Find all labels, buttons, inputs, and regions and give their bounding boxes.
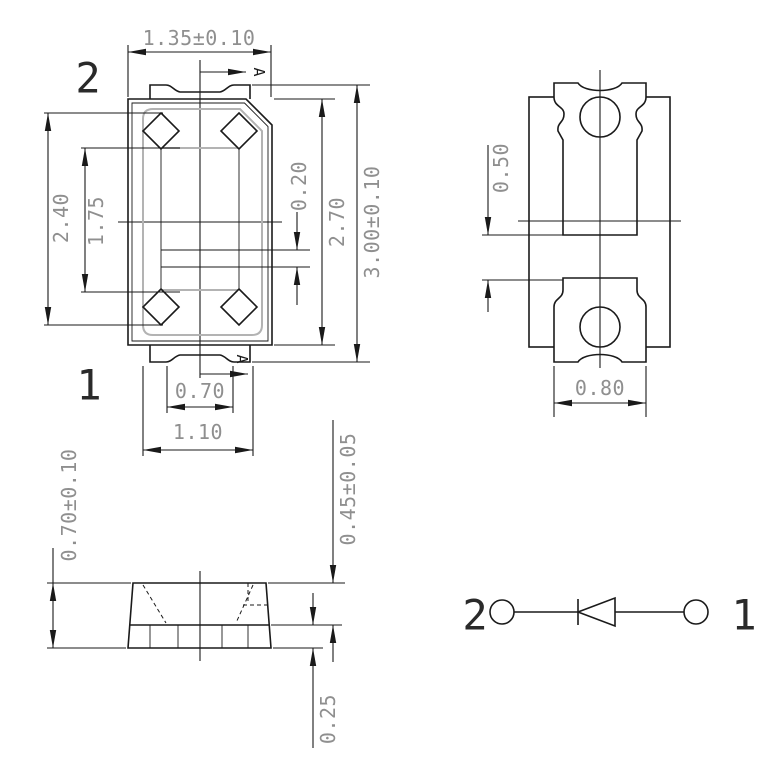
dim-center-gap: 0.20 (287, 161, 311, 211)
corner-diamond-top-right (221, 113, 257, 149)
hidden-edge-right (236, 585, 253, 623)
dim-body-height: 0.45±0.05 (336, 433, 360, 546)
section-label-bottom: A (233, 354, 251, 363)
schematic-pin-2-label: 2 (462, 591, 487, 640)
pin-2-label: 2 (75, 54, 100, 103)
top-view: A A 2 1 1.35±0.10 2.40 1.75 0.20 2.70 (44, 26, 384, 456)
dim-top-width: 1.35±0.10 (143, 26, 256, 50)
led-package-drawing: A A 2 1 1.35±0.10 2.40 1.75 0.20 2.70 (0, 0, 761, 772)
dim-pad-width: 0.80 (575, 376, 625, 400)
schematic-pin-1-label: 1 (731, 591, 756, 640)
dim-lead-height: 0.25 (316, 694, 340, 744)
terminal-2-circle (490, 600, 514, 624)
side-view: 0.70±0.10 0.45±0.05 0.25 (47, 420, 360, 748)
diode-triangle (578, 598, 615, 626)
corner-diamond-bottom-left (143, 289, 179, 325)
circuit-schematic: 2 1 (462, 591, 756, 640)
dim-left-outer: 2.40 (49, 193, 73, 243)
dim-pad-gap: 0.50 (489, 143, 513, 193)
dim-bottom-tab: 1.10 (173, 420, 223, 444)
dim-bottom-bump: 0.70 (175, 379, 225, 403)
hidden-edge-left (143, 585, 166, 623)
drawing-canvas: A A 2 1 1.35±0.10 2.40 1.75 0.20 2.70 (0, 0, 761, 772)
section-label-top: A (250, 67, 268, 76)
dim-right-overall: 3.00±0.10 (360, 166, 384, 279)
corner-diamond-top-left (143, 113, 179, 149)
pad-layout-view: 0.50 0.80 (482, 70, 681, 417)
dim-right-body: 2.70 (325, 197, 349, 247)
dim-total-height: 0.70±0.10 (57, 449, 81, 562)
dim-left-inner: 1.75 (84, 196, 108, 246)
corner-diamond-bottom-right (221, 289, 257, 325)
pin-1-label: 1 (76, 361, 101, 410)
terminal-1-circle (684, 600, 708, 624)
